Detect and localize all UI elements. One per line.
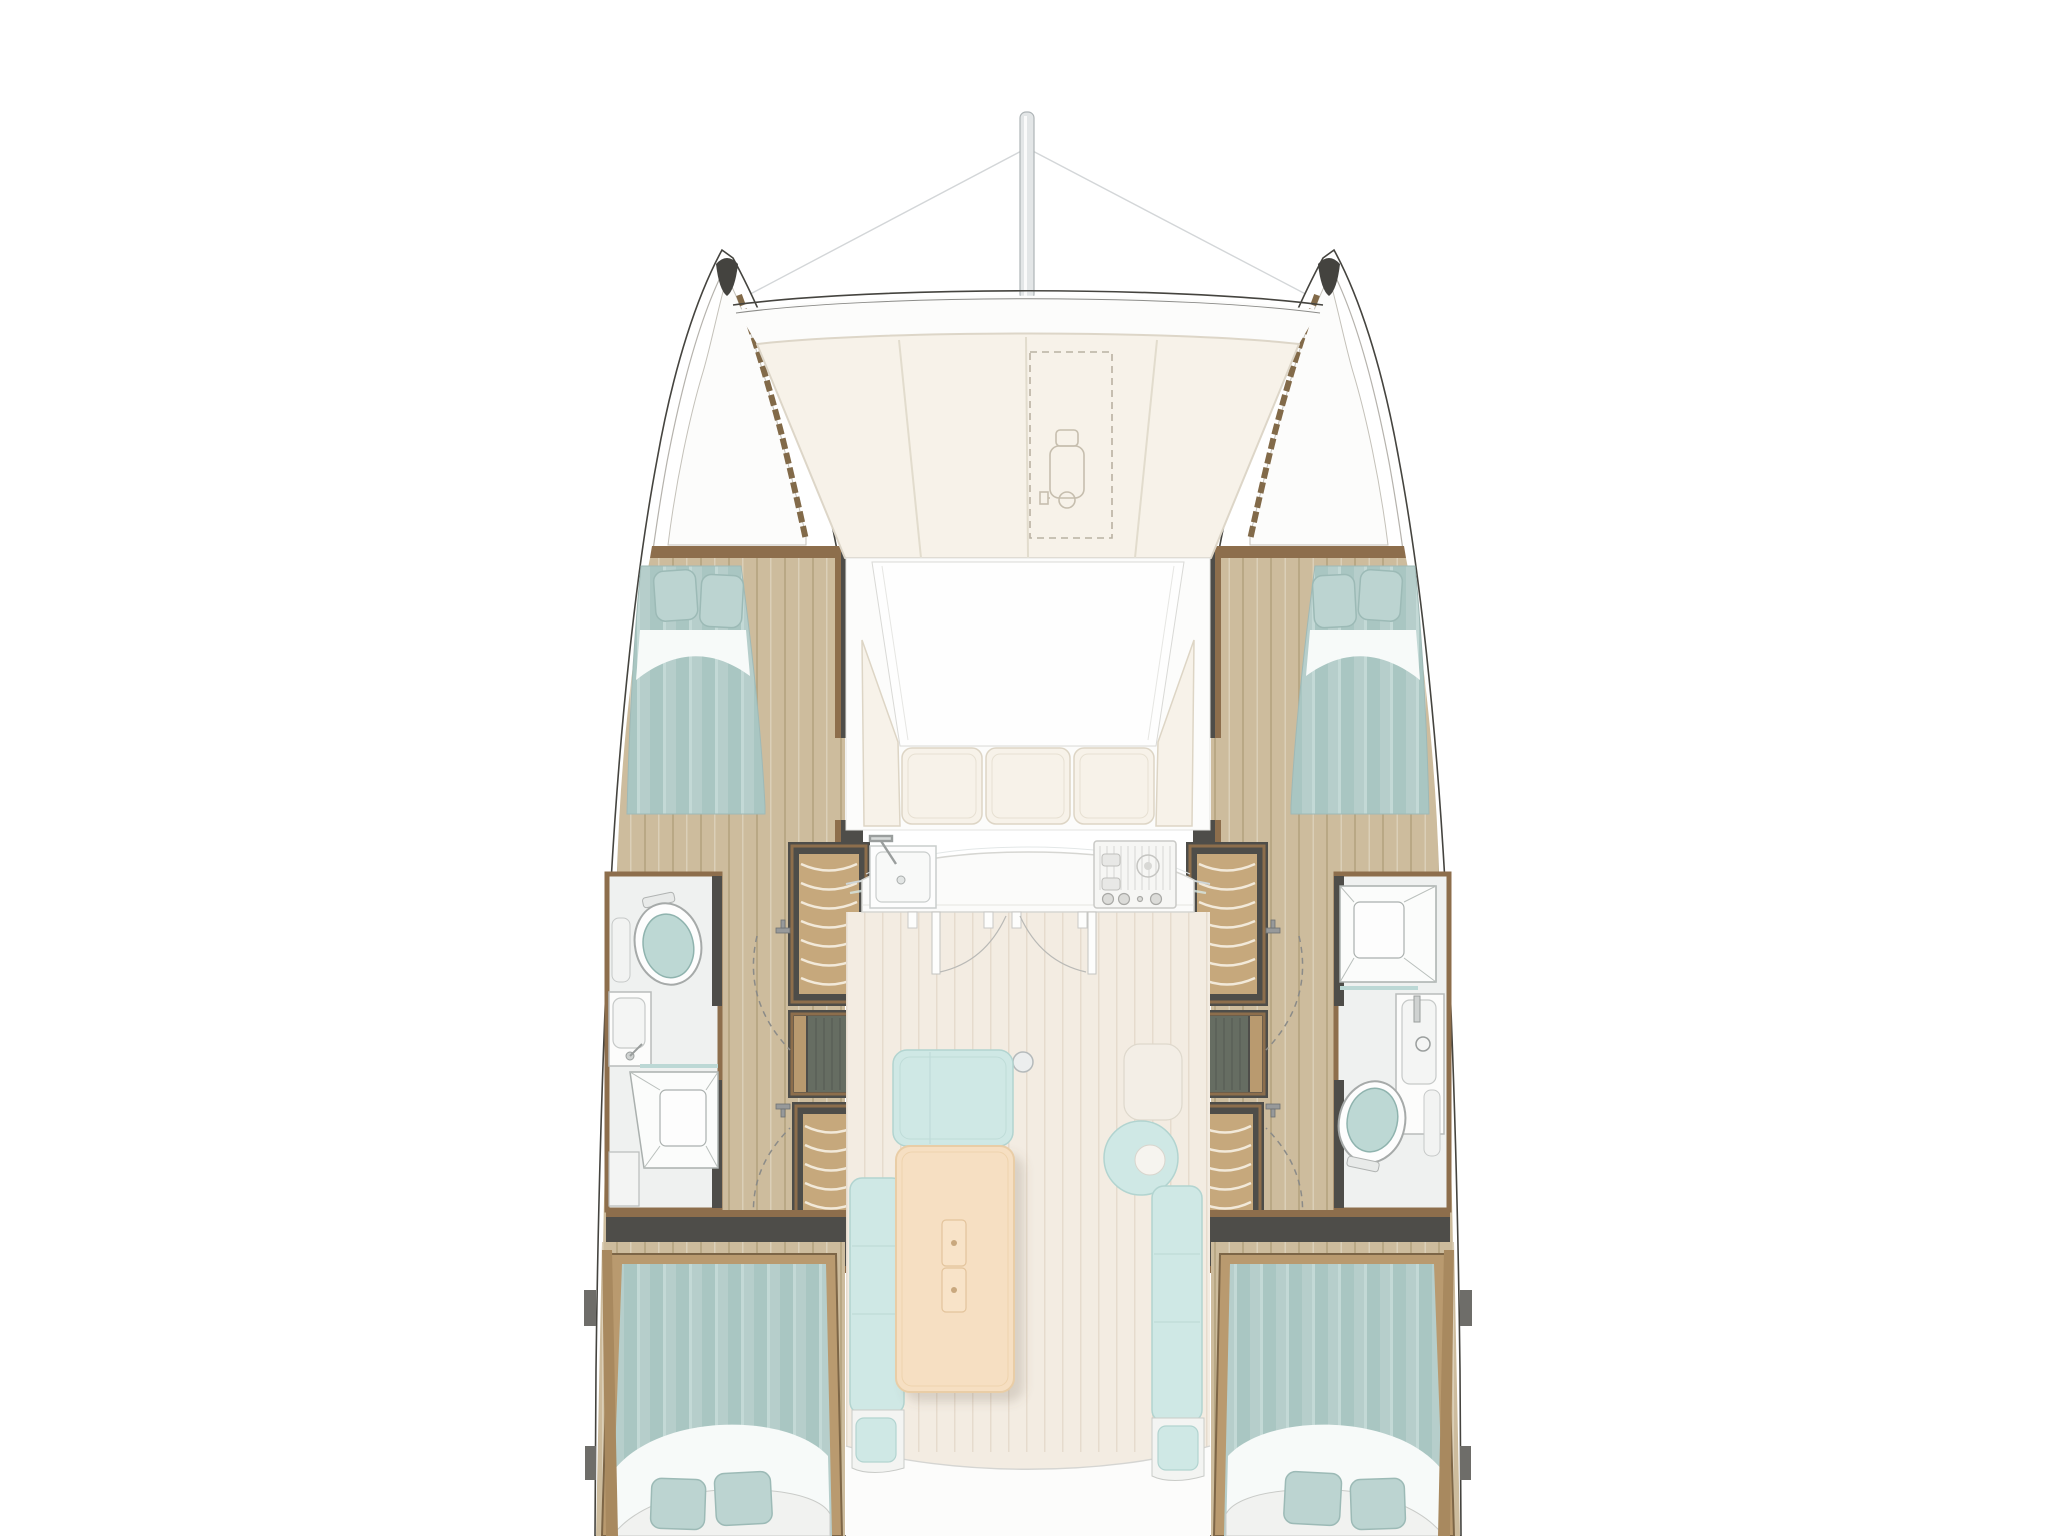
wall-shelf — [1424, 1090, 1440, 1156]
catamaran-floorplan: Catamaran interior layout — overhead flo… — [0, 0, 2048, 1536]
galley-sink — [870, 836, 936, 908]
cockpit-recess-floor — [872, 562, 1184, 746]
door-leaf — [1088, 912, 1096, 974]
port-head — [607, 874, 722, 1210]
starboard-bench — [1152, 1186, 1202, 1422]
sofa-arm-cushion — [856, 1418, 896, 1462]
dining-table — [896, 1146, 1024, 1402]
bench-arm-cushion — [1158, 1426, 1198, 1470]
bath-cabinet — [609, 1152, 639, 1206]
galley-stove — [1094, 841, 1176, 908]
vanity-sink — [609, 992, 651, 1066]
floorplan-svg: Catamaran interior layout — overhead flo… — [0, 0, 2048, 1536]
door-leaf — [932, 912, 940, 974]
shower — [630, 1066, 718, 1168]
cabinet-end — [1124, 1044, 1182, 1120]
support-post — [1013, 1052, 1033, 1072]
forward-cockpit — [846, 558, 1210, 830]
wall-shelf — [612, 918, 630, 982]
cockpit-bench-cushions — [902, 748, 1154, 824]
shower — [1340, 886, 1436, 988]
mast — [1020, 112, 1034, 300]
starboard-head — [1330, 874, 1449, 1210]
